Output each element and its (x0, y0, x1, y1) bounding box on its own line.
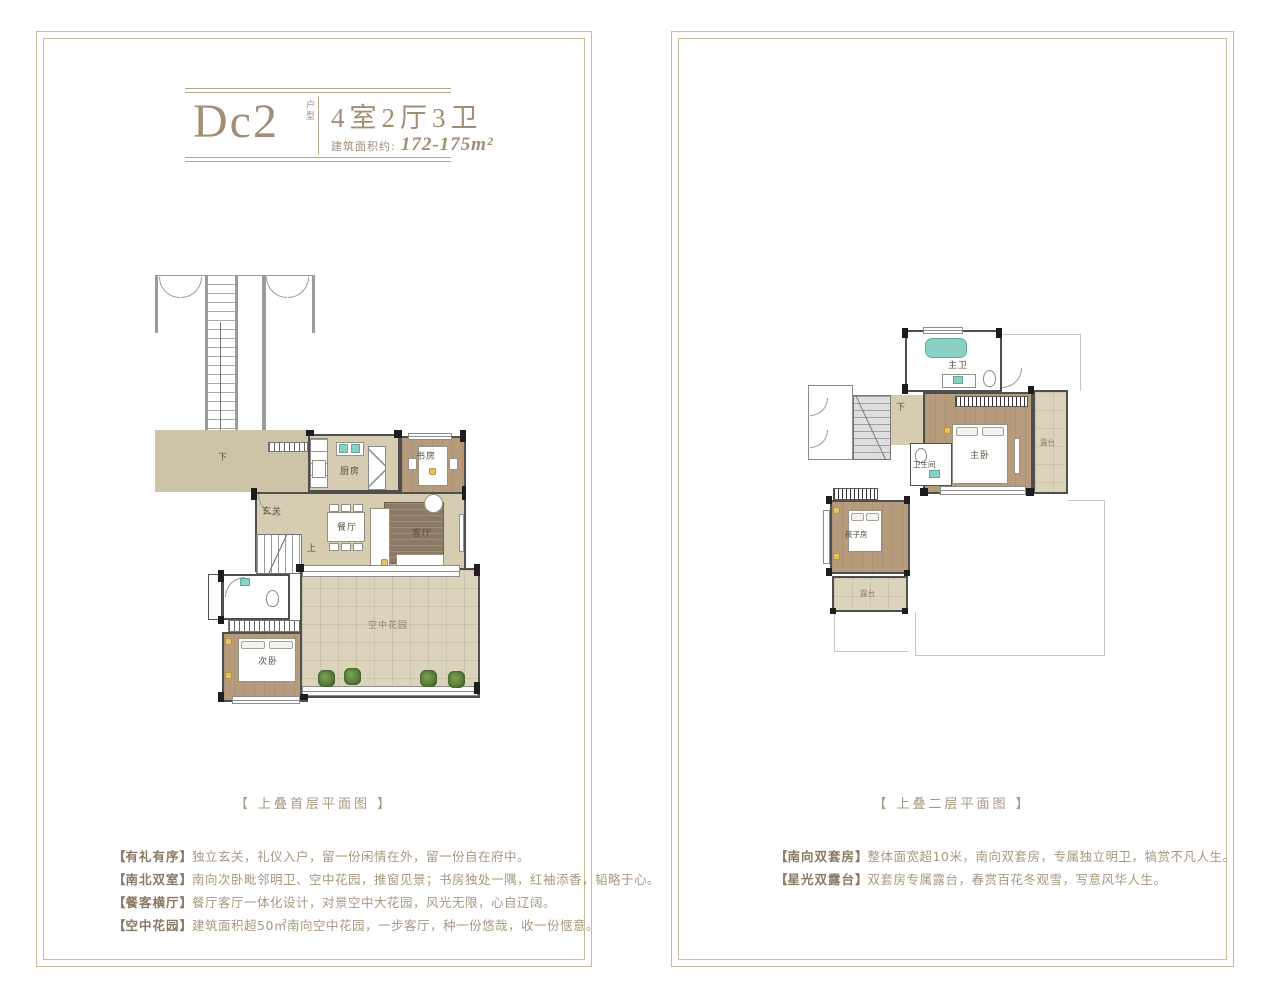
wardrobe (228, 620, 308, 632)
window (823, 510, 830, 564)
pillow-icon (982, 427, 1004, 436)
caption-second-floor: 【 上叠二层平面图 】 (665, 793, 1240, 812)
label-kitchen: 厨房 (340, 468, 360, 477)
plant-icon (318, 670, 335, 687)
bracket: 【 (775, 849, 788, 864)
lamp-icon (833, 507, 840, 514)
window (408, 433, 452, 440)
features-list-right: 【南向双套房】整体面宽超10米，南向双套房，专属独立明卫，犒赏不凡人生。 【星光… (775, 845, 1235, 891)
label-kids-room: 孩子房 (845, 531, 868, 539)
armchair-icon (424, 494, 443, 513)
wall-segment (474, 682, 480, 694)
wall-segment (474, 564, 480, 576)
title-rule (185, 161, 451, 162)
wall-segment (904, 570, 910, 576)
stove-icon (312, 460, 326, 478)
title-block: Dc2 户型 4室2厅3卫 建筑面积约: 172-175m² (185, 88, 451, 162)
sink-icon (953, 376, 963, 384)
wardrobe (955, 396, 1028, 407)
wall-segment (902, 384, 908, 394)
label-stairs-up: 上 (307, 545, 317, 554)
bracket: 】 (855, 849, 868, 864)
bracket: 】 (180, 872, 193, 887)
lamp-icon (429, 468, 436, 475)
wall-segment (1026, 488, 1034, 496)
features-list-left: 【有礼有序】独立玄关，礼仪入户，留一份闲情在外，留一份自在府中。 【南北双室】南… (113, 845, 660, 937)
feature-text: 建筑面积超50㎡南向空中花园，一步客厅，种一份悠哉，收一份惬意。 (192, 918, 599, 933)
bracket: 】 (180, 918, 193, 933)
sink-icon (351, 444, 360, 453)
bench-cabinet (268, 442, 308, 452)
window (923, 327, 963, 334)
feature-tag: 南向双套房 (788, 849, 856, 864)
feature-row: 【空中花园】建筑面积超50㎡南向空中花园，一步客厅，种一份悠哉，收一份惬意。 (113, 914, 660, 937)
feature-tag: 星光双露台 (788, 872, 856, 887)
bracket: 【 (113, 872, 126, 887)
bracket: 】 (180, 849, 193, 864)
chair-icon (329, 543, 339, 551)
window (940, 486, 1026, 495)
feature-row: 【有礼有序】独立玄关，礼仪入户，留一份闲情在外，留一份自在府中。 (113, 845, 660, 868)
wall-segment (251, 488, 257, 500)
pillow-icon (269, 641, 293, 649)
wall-segment (920, 488, 928, 496)
door-arc (266, 277, 287, 298)
wall-segment (904, 496, 910, 504)
feature-text: 整体面宽超10米，南向双套房，专属独立明卫，犒赏不凡人生。 (868, 849, 1236, 864)
wall-segment (902, 608, 908, 614)
unit-code: Dc2 (193, 94, 279, 150)
lamp-icon (944, 427, 951, 434)
wall-segment (826, 496, 832, 504)
window (232, 696, 300, 704)
floor-plan-second: 主卫 下 主卧 露台 (790, 318, 1120, 718)
left-panel: Dc2 户型 4室2厅3卫 建筑面积约: 172-175m² (30, 25, 598, 973)
label-dining: 餐厅 (337, 524, 357, 533)
area-value: 172-175m² (401, 134, 494, 155)
wardrobe (833, 488, 878, 500)
wall-segment (394, 430, 402, 438)
caption-first-floor: 【 上叠首层平面图 】 (30, 793, 598, 812)
lamp-icon (833, 553, 840, 560)
feature-text: 餐厅客厅一体化设计，对景空中大花园，风光无限，心自辽阔。 (192, 895, 556, 910)
feature-tag: 餐客横厅 (126, 895, 180, 910)
wall-segment (460, 430, 466, 442)
roof-outline (834, 612, 835, 652)
feature-text: 双套房专属露台，春赏百花冬观雪，写意风华人生。 (868, 872, 1167, 887)
sink-icon (929, 470, 940, 478)
door-arc (159, 277, 180, 298)
tv-console (459, 514, 464, 552)
sink-icon (240, 578, 250, 586)
label-stairs-down: 下 (896, 404, 906, 413)
title-divider (318, 96, 319, 154)
bracket: 】 (180, 895, 193, 910)
wall-segment (306, 430, 314, 436)
feature-tag: 空中花园 (126, 918, 180, 933)
label-bedroom2: 次卧 (258, 658, 278, 667)
chair-icon (353, 504, 363, 512)
toilet-icon (266, 590, 279, 607)
area-label: 建筑面积约: (331, 140, 396, 153)
label-terrace-east: 露台 (1040, 439, 1055, 447)
bracket: 【 (113, 895, 126, 910)
room-count: 4室2厅3卫 (331, 96, 483, 135)
chair-icon (329, 504, 339, 512)
lamp-icon (225, 638, 232, 645)
label-living: 客厅 (412, 530, 432, 539)
feature-row: 【星光双露台】双套房专属露台，春赏百花冬观雪，写意风华人生。 (775, 868, 1235, 891)
public-hall (155, 430, 310, 492)
plant-icon (344, 668, 361, 685)
wall-segment (462, 486, 466, 500)
feature-row: 【餐客横厅】餐厅客厅一体化设计，对景空中大花园，风光无限，心自辽阔。 (113, 891, 660, 914)
chair-icon (353, 543, 363, 551)
wall-segment (996, 328, 1002, 338)
bathtub-icon (925, 338, 967, 358)
closet-room (808, 385, 853, 460)
roof-outline (1104, 500, 1105, 656)
plant-icon (420, 670, 437, 687)
wall-segment (902, 328, 908, 338)
area-line: 建筑面积约: 172-175m² (331, 134, 494, 156)
wall-segment (262, 275, 266, 440)
sink-icon (339, 444, 348, 453)
unit-code-tag: 户型 (303, 100, 316, 122)
feature-text: 独立玄关，礼仪入户，留一份闲情在外，留一份自在府中。 (192, 849, 530, 864)
pillow-icon (866, 513, 879, 521)
label-sky-garden: 空中花园 (368, 622, 408, 631)
label-study: 书房 (416, 453, 436, 462)
pillow-icon (956, 427, 978, 436)
label-foyer: 玄关 (262, 508, 282, 517)
pillow-icon (241, 641, 265, 649)
wall-segment (218, 692, 224, 702)
brochure-page: Dc2 户型 4室2厅3卫 建筑面积约: 172-175m² (0, 0, 1269, 999)
pantry-cabinet (368, 446, 386, 490)
title-rule (185, 157, 451, 158)
tv-console (1014, 438, 1020, 474)
floor-plan-first: 下 厨房 书房 玄关 (150, 262, 490, 712)
bracket: 【 (113, 849, 126, 864)
bracket: 】 (855, 872, 868, 887)
wall-segment (312, 275, 315, 333)
feature-text: 南向次卧毗邻明卫、空中花园，推窗见景；书房独处一隅，红袖添香，韬略于心。 (192, 872, 660, 887)
roof-outline (1068, 500, 1105, 501)
wall-segment (830, 608, 836, 614)
plant-icon (448, 671, 465, 688)
wall-segment (296, 564, 304, 572)
bracket: 【 (775, 872, 788, 887)
title-rule (185, 88, 451, 89)
label-hall-down: 下 (218, 454, 228, 463)
wall-segment (1028, 386, 1034, 394)
feature-tag: 有礼有序 (126, 849, 180, 864)
label-master-bath: 主卫 (948, 362, 968, 371)
label-terrace-south: 露台 (860, 590, 875, 598)
chair-icon (449, 458, 458, 470)
label-master-bedroom: 主卧 (970, 452, 990, 461)
chair-icon (341, 543, 351, 551)
right-panel: 主卫 下 主卧 露台 (665, 25, 1240, 973)
title-rule (185, 92, 451, 93)
wall-segment (155, 275, 158, 333)
roof-outline (915, 655, 1105, 656)
bracket: 【 (113, 918, 126, 933)
roof-outline (834, 651, 908, 652)
wall-segment (300, 694, 308, 700)
wall-segment (826, 568, 832, 576)
door-arc (288, 277, 309, 298)
toilet-icon (983, 370, 996, 387)
pillow-icon (851, 513, 864, 521)
wall-segment (218, 616, 224, 624)
interior-stairs (853, 395, 891, 460)
label-bathroom: 卫生间 (913, 461, 936, 469)
lamp-icon (225, 672, 232, 679)
door-arc (181, 277, 202, 298)
feature-row: 【南北双室】南向次卧毗邻明卫、空中花园，推窗见景；书房独处一隅，红袖添香，韬略于… (113, 868, 660, 891)
roof-outline (915, 612, 916, 656)
chair-icon (341, 504, 351, 512)
feature-row: 【南向双套房】整体面宽超10米，南向双套房，专属独立明卫，犒赏不凡人生。 (775, 845, 1235, 868)
feature-tag: 南北双室 (126, 872, 180, 887)
stair-rail (220, 322, 221, 442)
wall-segment (218, 570, 224, 582)
sliding-door-window (302, 565, 460, 577)
